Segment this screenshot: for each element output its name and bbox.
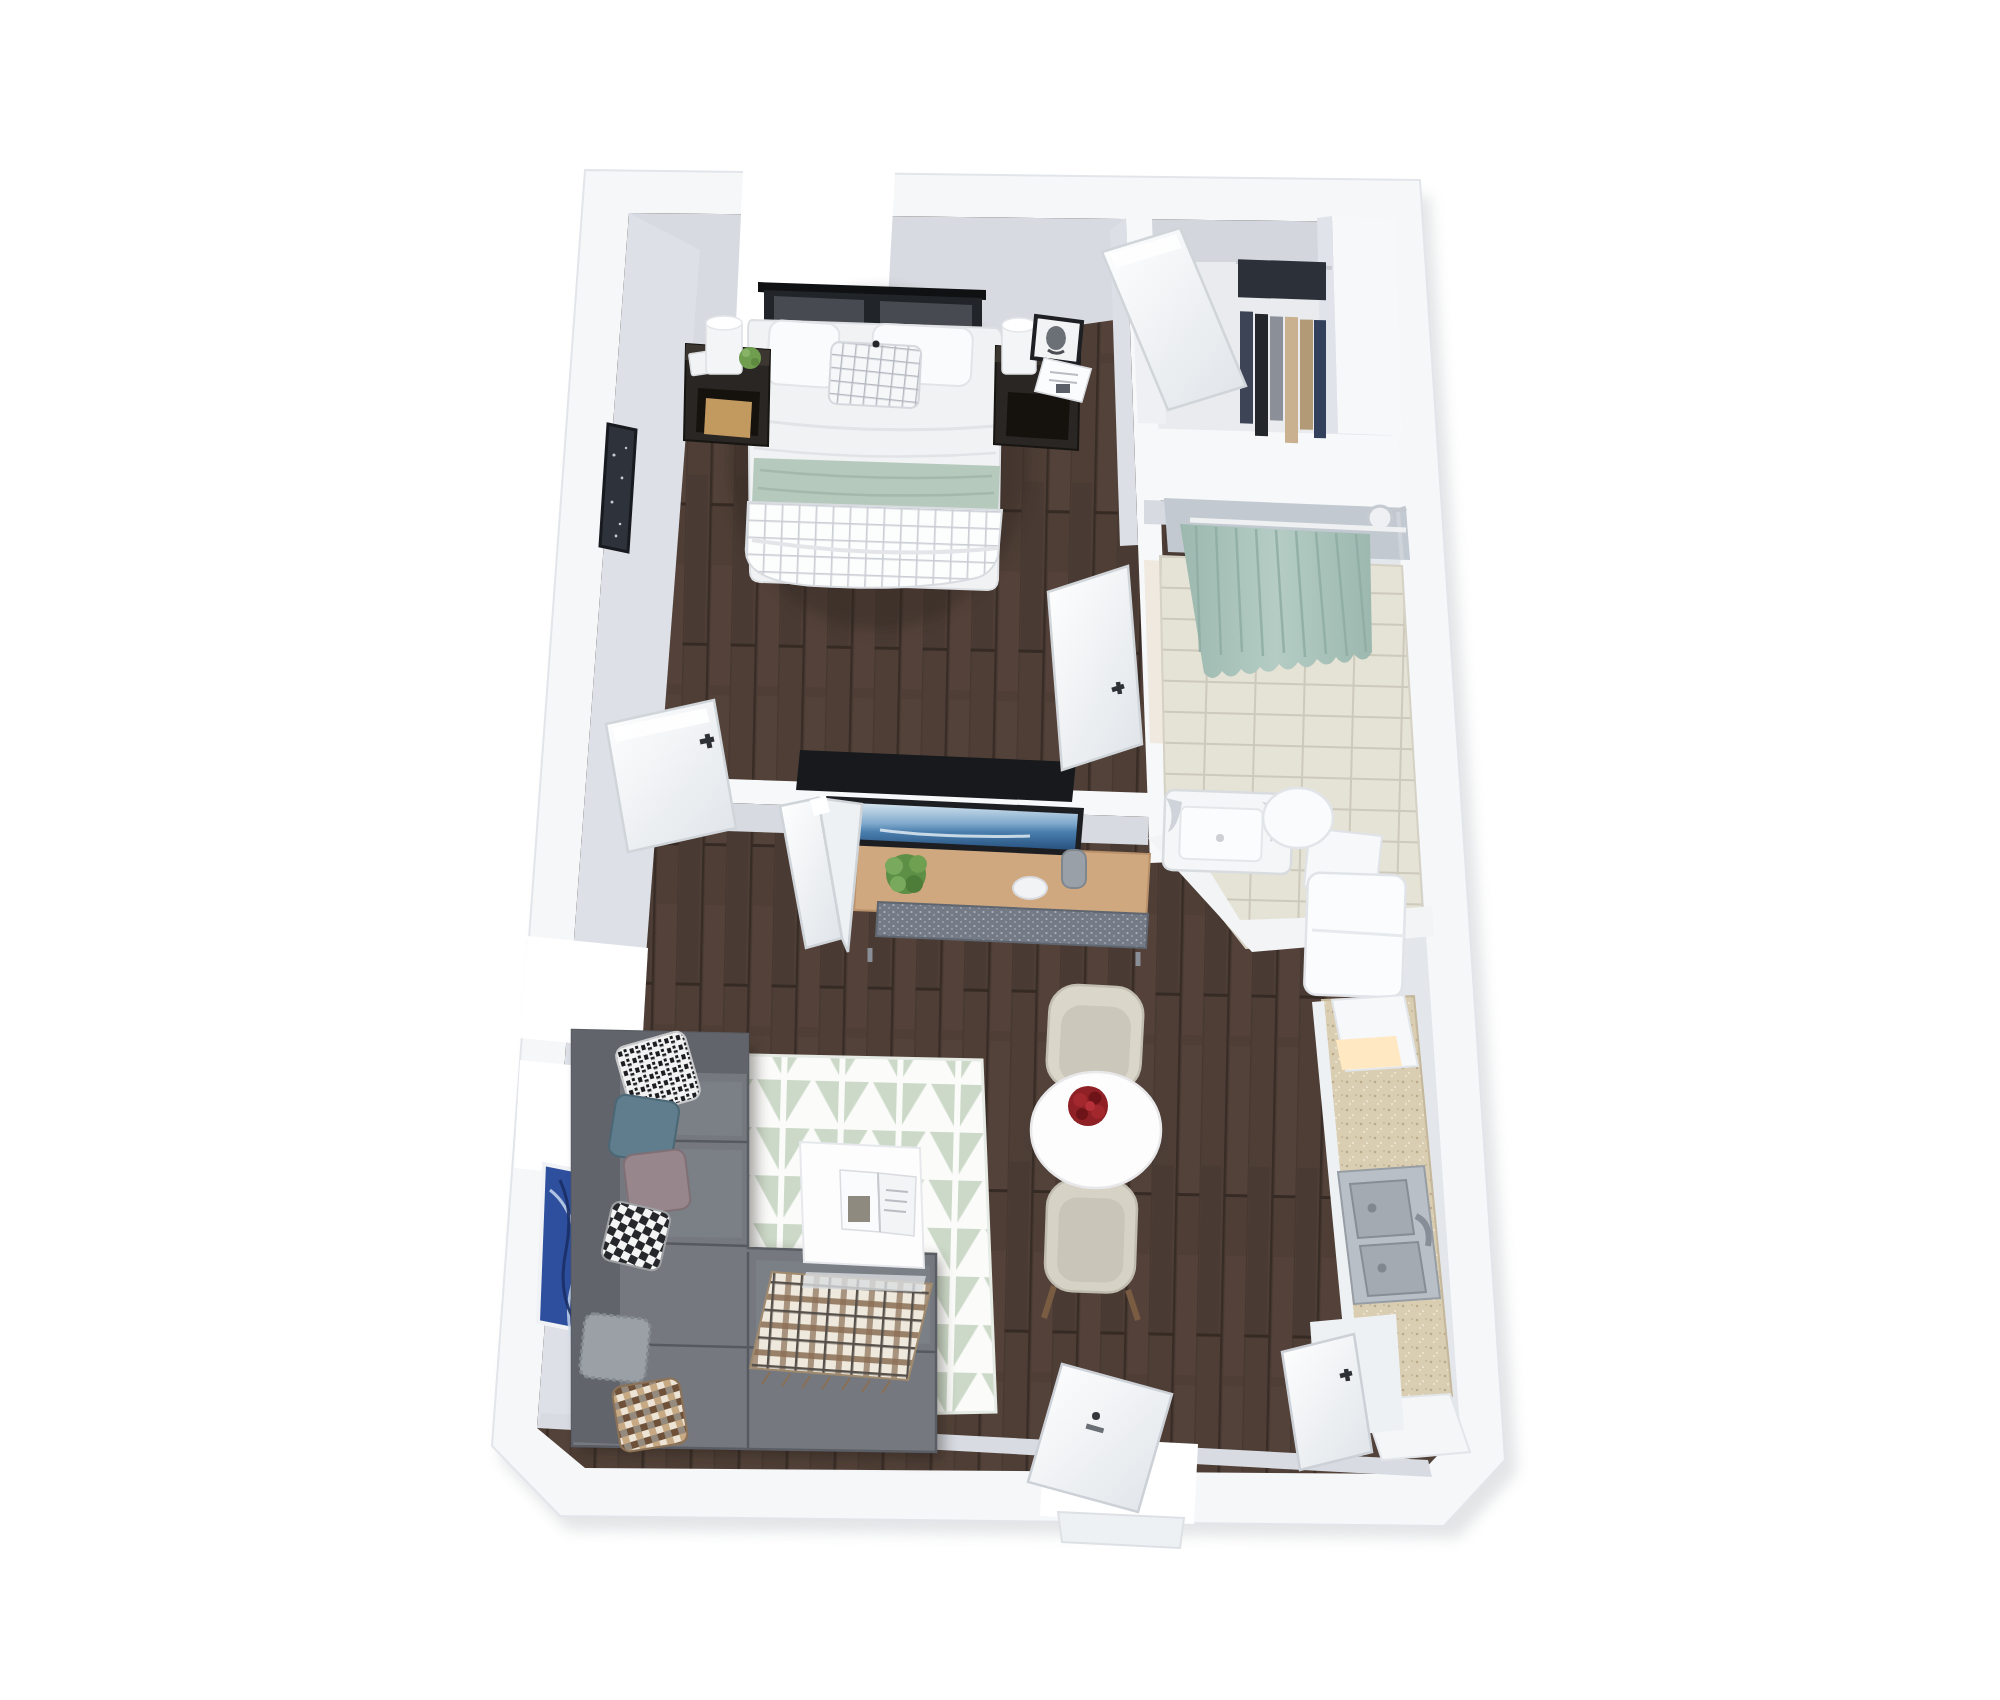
appliance-glow	[1336, 1036, 1402, 1070]
entry-door-handle	[1092, 1412, 1100, 1420]
bed	[746, 320, 1002, 590]
bedroom-door	[606, 700, 736, 852]
pillow-brown-check	[611, 1377, 688, 1453]
magazine-photo	[848, 1196, 870, 1222]
sink-basin-south	[1360, 1242, 1426, 1296]
garment-navy	[1240, 311, 1253, 423]
room-living	[538, 1029, 996, 1460]
countertop-appliance	[1332, 995, 1418, 1071]
double-sink	[1338, 1166, 1440, 1304]
garment-beige	[1285, 317, 1298, 443]
garment-black	[1255, 314, 1268, 436]
console-plant	[885, 854, 927, 894]
closet-counter-vertical	[1332, 216, 1402, 436]
wall-art-dark	[600, 424, 636, 552]
tub-drain	[1216, 834, 1224, 842]
closet-counter-top	[1140, 428, 1402, 508]
garment-tan	[1300, 319, 1313, 429]
floor-plan-render	[0, 0, 2000, 1700]
pillow-gray-textured	[579, 1313, 651, 1384]
floor-plan-stage	[0, 0, 2000, 1700]
console-bowl	[1013, 877, 1047, 899]
rose-centerpiece	[1068, 1086, 1108, 1126]
nightstand-right	[994, 316, 1092, 450]
pillow-grid-accent	[828, 342, 921, 409]
garment-gray	[1270, 316, 1283, 420]
folded-clothes-shelf	[1238, 259, 1326, 300]
refrigerator	[1304, 872, 1406, 997]
coffee-table-magazine	[840, 1170, 916, 1236]
pillow-tassel	[873, 341, 880, 348]
entry-threshold	[1058, 1512, 1184, 1548]
bathroom-door	[1048, 566, 1142, 770]
wood-storage-box	[704, 398, 752, 438]
console-vase	[1062, 850, 1086, 888]
photo-frame	[1032, 316, 1082, 364]
succulent	[739, 347, 761, 369]
pillow-check	[600, 1200, 672, 1272]
sink-basin-north	[1350, 1180, 1414, 1238]
garment-navy-2	[1314, 320, 1326, 438]
hanging-clothes	[1238, 259, 1326, 443]
